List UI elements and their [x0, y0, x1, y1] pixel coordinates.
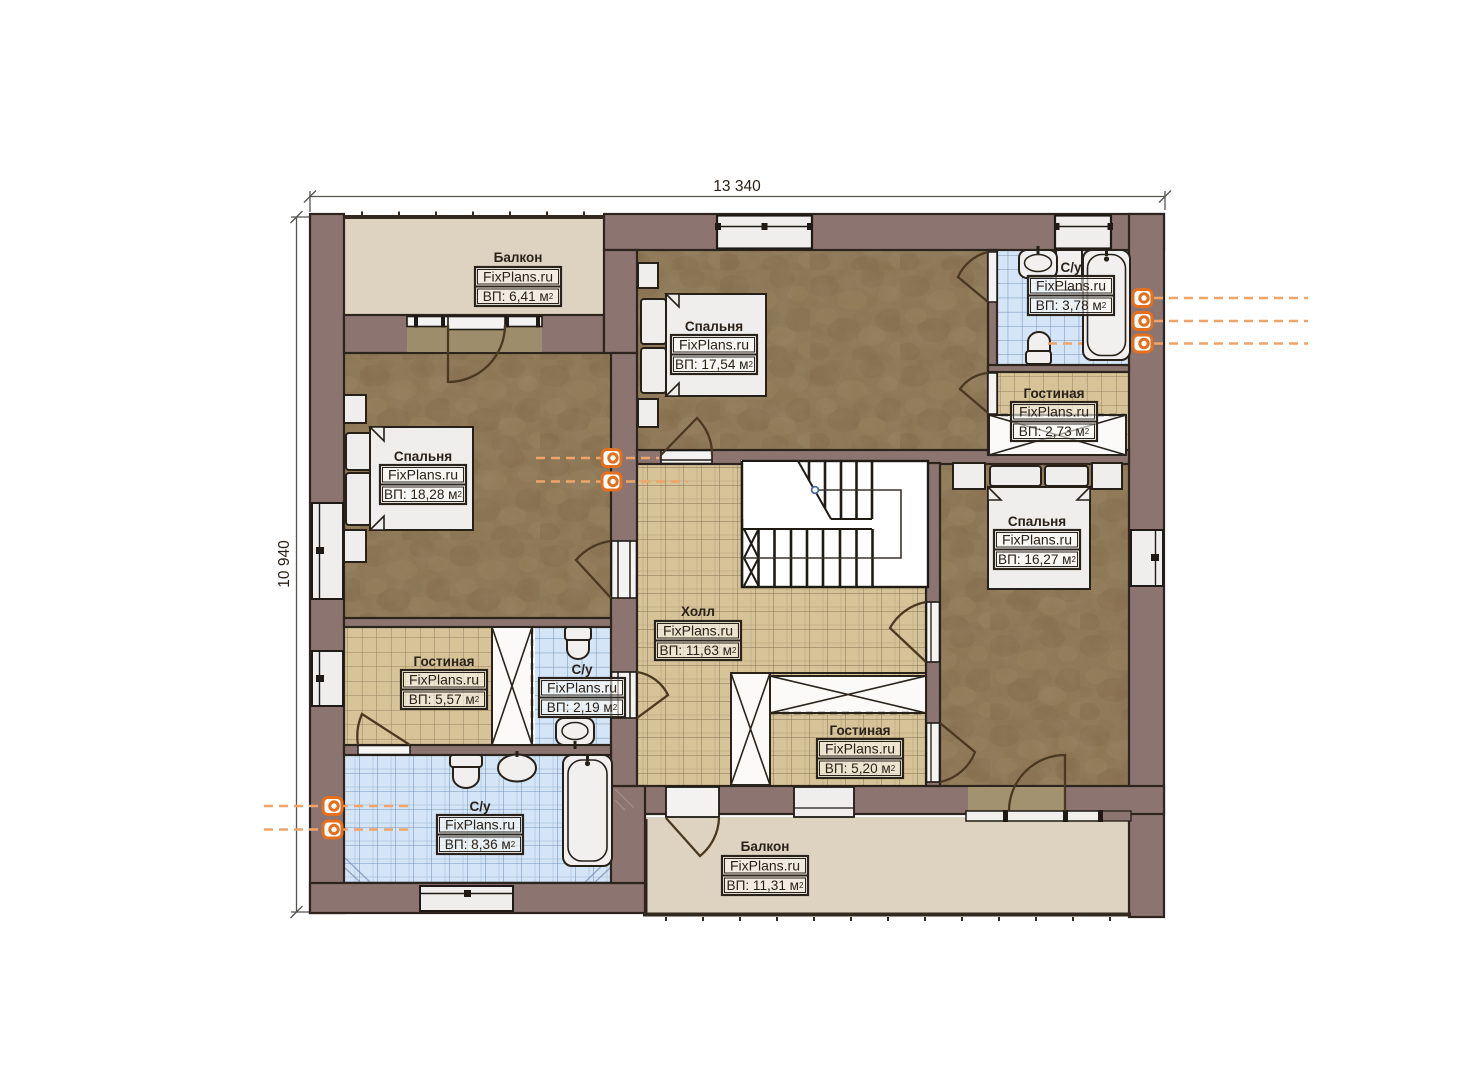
svg-text:Спальня: Спальня [394, 449, 452, 464]
svg-text:ВП: 2,19 м2: ВП: 2,19 м2 [547, 700, 618, 715]
svg-text:FixPlans.ru: FixPlans.ru [409, 672, 479, 688]
svg-text:Спальня: Спальня [1008, 514, 1066, 529]
svg-text:FixPlans.ru: FixPlans.ru [1002, 532, 1072, 548]
svg-text:FixPlans.ru: FixPlans.ru [547, 680, 617, 696]
svg-text:FixPlans.ru: FixPlans.ru [679, 337, 749, 353]
svg-text:FixPlans.ru: FixPlans.ru [388, 467, 458, 483]
svg-text:FixPlans.ru: FixPlans.ru [1019, 404, 1089, 420]
svg-text:Балкон: Балкон [741, 839, 790, 854]
svg-text:ВП: 18,28 м2: ВП: 18,28 м2 [384, 487, 463, 502]
svg-text:Балкон: Балкон [494, 250, 543, 265]
svg-text:FixPlans.ru: FixPlans.ru [825, 741, 895, 757]
svg-text:ВП: 3,78 м2: ВП: 3,78 м2 [1036, 298, 1107, 313]
svg-text:FixPlans.ru: FixPlans.ru [445, 817, 515, 833]
svg-text:ВП: 5,20 м2: ВП: 5,20 м2 [825, 761, 896, 776]
svg-text:13 340: 13 340 [713, 178, 761, 195]
svg-text:FixPlans.ru: FixPlans.ru [1036, 278, 1106, 294]
svg-text:С/у: С/у [469, 799, 491, 814]
svg-text:ВП: 16,27 м2: ВП: 16,27 м2 [998, 552, 1077, 567]
svg-text:Спальня: Спальня [685, 319, 743, 334]
svg-text:С/у: С/у [1060, 260, 1082, 275]
svg-text:10 940: 10 940 [276, 540, 293, 588]
svg-text:ВП: 11,31 м2: ВП: 11,31 м2 [727, 878, 805, 893]
svg-text:FixPlans.ru: FixPlans.ru [730, 858, 800, 874]
svg-text:ВП: 6,41 м2: ВП: 6,41 м2 [483, 289, 554, 304]
svg-text:FixPlans.ru: FixPlans.ru [483, 269, 553, 285]
svg-text:Гостиная: Гостиная [1023, 386, 1084, 401]
svg-text:ВП: 17,54 м2: ВП: 17,54 м2 [675, 357, 754, 372]
svg-text:ВП: 11,63 м2: ВП: 11,63 м2 [660, 643, 738, 658]
svg-text:FixPlans.ru: FixPlans.ru [663, 623, 733, 639]
svg-text:ВП: 2,73 м2: ВП: 2,73 м2 [1019, 424, 1090, 439]
svg-text:ВП: 5,57 м2: ВП: 5,57 м2 [409, 692, 480, 707]
svg-text:С/у: С/у [571, 662, 593, 677]
svg-text:Гостиная: Гостиная [829, 723, 890, 738]
svg-text:ВП: 8,36 м2: ВП: 8,36 м2 [445, 837, 516, 852]
svg-text:Холл: Холл [681, 604, 715, 619]
svg-text:Гостиная: Гостиная [413, 654, 474, 669]
